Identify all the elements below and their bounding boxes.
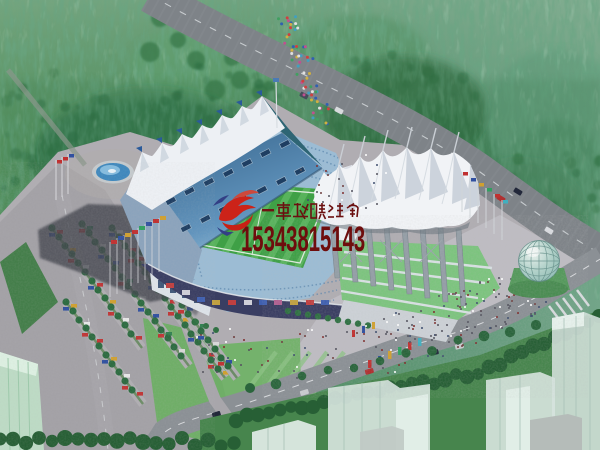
svg-text:15343815143: 15343815143 bbox=[241, 220, 365, 259]
